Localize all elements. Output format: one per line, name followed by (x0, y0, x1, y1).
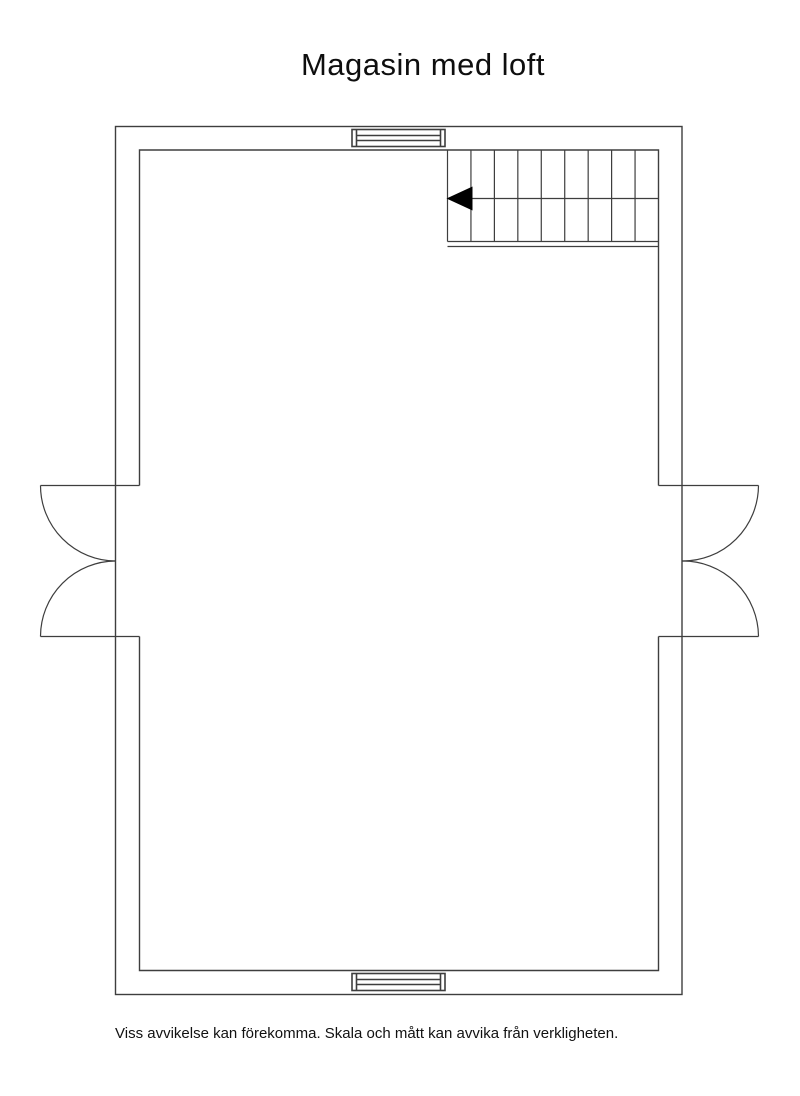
staircase (447, 150, 659, 247)
outer-wall (116, 127, 683, 995)
inner-wall-lower (140, 637, 659, 971)
inner-wall (140, 150, 659, 971)
door-right (659, 486, 759, 637)
door-left (41, 486, 140, 637)
floor-plan-page: Magasin med loft (0, 0, 800, 1096)
window-bottom-glazing-lines (357, 980, 441, 985)
window-bottom (352, 974, 445, 991)
outer-wall-outline (116, 127, 683, 995)
window-top-frame (352, 130, 445, 147)
window-top-glazing-lines (357, 136, 441, 141)
staircase-steps (471, 150, 635, 242)
window-bottom-frame (352, 974, 445, 991)
floor-plan-drawing (0, 0, 800, 1096)
door-left-lower-swing-arc (41, 561, 116, 637)
door-left-upper-swing-arc (41, 486, 116, 562)
door-right-upper-swing-arc (682, 486, 759, 562)
window-bottom-end-caps (357, 974, 441, 991)
window-top (352, 130, 445, 147)
disclaimer-text: Viss avvikelse kan förekomma. Skala och … (115, 1025, 618, 1042)
door-left-leaves (41, 486, 140, 637)
door-right-leaves (659, 486, 759, 637)
door-right-lower-swing-arc (682, 561, 759, 637)
stairs-direction-arrow-icon (447, 187, 473, 211)
window-top-end-caps (357, 130, 441, 147)
inner-wall-upper (140, 150, 659, 486)
